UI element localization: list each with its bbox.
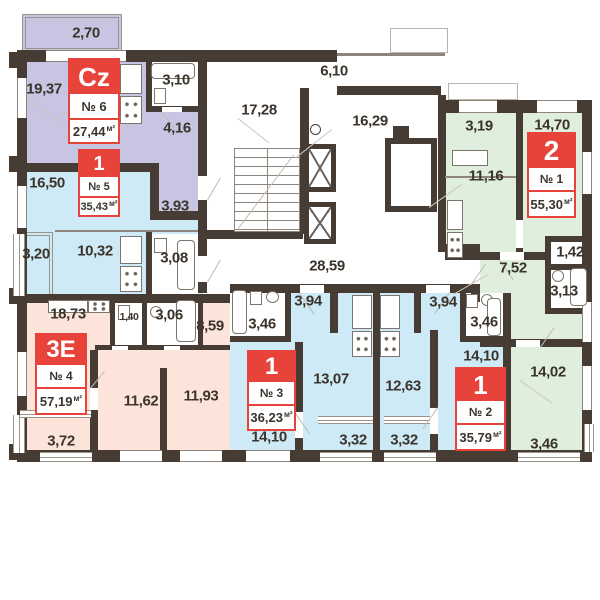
room-area-label: 14,10 bbox=[463, 348, 499, 365]
wall-segment bbox=[337, 53, 445, 56]
room-area-label: 16,50 bbox=[29, 175, 65, 192]
room-area-label: 13,07 bbox=[313, 371, 349, 388]
room-area-label: 3,32 bbox=[390, 432, 418, 449]
common-area-label: 17,28 bbox=[241, 102, 277, 119]
stove-icon bbox=[120, 266, 142, 292]
utility-shaft bbox=[385, 138, 437, 212]
window bbox=[17, 186, 27, 228]
room-area-label: 4,16 bbox=[163, 120, 191, 137]
area-unit: м² bbox=[493, 430, 502, 439]
room-area-label: 3,06 bbox=[155, 307, 183, 324]
door-opening bbox=[426, 285, 450, 293]
room-area-label: 11,93 bbox=[184, 388, 219, 405]
balcony-rail bbox=[518, 452, 580, 462]
area-unit: м² bbox=[73, 394, 82, 403]
window bbox=[537, 100, 577, 113]
balcony-rail bbox=[318, 416, 373, 424]
balcony-rail bbox=[320, 452, 372, 462]
apartment-area: 55,30м² bbox=[529, 192, 574, 216]
leader-line bbox=[237, 118, 269, 143]
apartment-area: 36,23м² bbox=[249, 406, 294, 429]
balcony-rail bbox=[384, 452, 436, 462]
window bbox=[582, 302, 592, 342]
wall-segment bbox=[393, 126, 409, 138]
room-area-label: 3,13 bbox=[550, 283, 578, 300]
kitchen-counter-icon bbox=[120, 64, 142, 94]
apartment-area: 35,43м² bbox=[80, 198, 118, 215]
wall-segment bbox=[545, 236, 592, 242]
apartment-type-label: 1 bbox=[457, 369, 504, 401]
toilet-icon bbox=[154, 88, 166, 104]
wall-segment bbox=[330, 287, 338, 333]
stove-icon bbox=[380, 331, 400, 357]
apartment-badge-2[interactable]: 1 № 2 35,79м² bbox=[455, 367, 506, 451]
wall-segment bbox=[146, 232, 152, 294]
room-area-label: 3,72 bbox=[47, 433, 75, 450]
elevator-icon bbox=[304, 144, 336, 192]
stove-icon bbox=[120, 96, 142, 124]
window bbox=[246, 450, 290, 462]
wall-segment bbox=[460, 336, 503, 342]
window bbox=[582, 152, 592, 194]
common-area-label: 28,59 bbox=[309, 258, 345, 275]
toilet-icon bbox=[466, 294, 478, 308]
common-area-label: 16,29 bbox=[352, 113, 388, 130]
room-area-label: 3,93 bbox=[161, 198, 189, 215]
balcony-rail bbox=[13, 234, 25, 296]
wall-segment bbox=[17, 450, 592, 462]
door-swing bbox=[207, 259, 221, 282]
door-opening bbox=[516, 340, 540, 347]
balcony-rail bbox=[13, 415, 25, 453]
room-area-label: 19,37 bbox=[26, 81, 62, 98]
apartment-type-label: 1 bbox=[249, 352, 294, 382]
wall-segment bbox=[414, 287, 421, 333]
door-opening bbox=[112, 346, 128, 350]
area-value: 55,30 bbox=[530, 197, 563, 212]
wall-segment bbox=[438, 95, 446, 244]
kitchen-counter-icon bbox=[352, 295, 372, 329]
window bbox=[180, 450, 222, 462]
apartment-number: № 2 bbox=[457, 401, 504, 425]
apartment-badge-4[interactable]: 3E № 4 57,19м² bbox=[35, 333, 87, 415]
door-opening bbox=[516, 220, 523, 248]
sink-icon bbox=[266, 291, 279, 303]
apartment-number: № 3 bbox=[249, 382, 294, 406]
room-area-label: 8,59 bbox=[196, 318, 224, 335]
window bbox=[459, 100, 497, 113]
area-value: 57,19 bbox=[40, 394, 73, 409]
window bbox=[17, 352, 27, 396]
area-unit: м² bbox=[564, 197, 573, 206]
wall-segment bbox=[9, 156, 17, 172]
apartment-badge-3[interactable]: 1 № 3 36,23м² bbox=[247, 350, 296, 431]
apartment-number: № 6 bbox=[70, 94, 118, 120]
wall-segment bbox=[160, 368, 167, 450]
room-area-label: 3,46 bbox=[248, 316, 276, 333]
room-area-label: 11,62 bbox=[124, 393, 159, 410]
window bbox=[582, 366, 592, 410]
room-area-label: 14,10 bbox=[251, 429, 287, 446]
door-opening bbox=[90, 388, 98, 410]
area-value: 27,44 bbox=[73, 124, 106, 139]
bathtub-icon bbox=[232, 290, 247, 334]
room-area-label: 7,52 bbox=[499, 260, 527, 277]
stove-icon bbox=[352, 331, 372, 357]
room-area-label: 3,46 bbox=[530, 436, 558, 453]
exterior-outline bbox=[448, 83, 518, 100]
elevator-icon bbox=[304, 202, 336, 244]
apartment-badge-1[interactable]: 2 № 1 55,30м² bbox=[527, 132, 576, 218]
room-area-label: 3,94 bbox=[294, 293, 322, 310]
wall-segment bbox=[9, 52, 17, 68]
apartment-badge-5[interactable]: 1 № 5 35,43м² bbox=[78, 149, 120, 217]
room-area-label: 1,40 bbox=[120, 311, 139, 323]
apartment-area: 27,44м² bbox=[70, 120, 118, 142]
room-area-label: 14,02 bbox=[530, 364, 566, 381]
apartment-type-label: 2 bbox=[529, 134, 574, 168]
wardrobe-icon bbox=[452, 150, 488, 166]
wall-segment bbox=[285, 287, 291, 336]
common-area-label: 6,10 bbox=[320, 63, 348, 80]
apartment-badge-6[interactable]: Cz № 6 27,44м² bbox=[68, 58, 120, 144]
sink-icon bbox=[552, 270, 564, 282]
room-area-label: 18,73 bbox=[50, 306, 86, 323]
wall-segment bbox=[373, 293, 380, 450]
room-area-label: 3,10 bbox=[162, 72, 190, 89]
wall-segment bbox=[230, 336, 291, 342]
area-unit: м² bbox=[109, 199, 118, 208]
wall-segment bbox=[110, 303, 115, 347]
area-value: 36,23 bbox=[250, 410, 283, 425]
door-opening bbox=[198, 256, 207, 282]
room-area-label: 3,19 bbox=[465, 118, 493, 135]
door-opening bbox=[198, 176, 207, 200]
apartment-type-label: Cz bbox=[70, 60, 118, 94]
kitchen-counter-icon bbox=[447, 200, 463, 230]
room-area-label: 14,70 bbox=[534, 117, 570, 134]
wall-segment bbox=[55, 230, 198, 232]
wall-segment bbox=[337, 86, 441, 95]
balcony-rail bbox=[584, 424, 594, 452]
stove-icon bbox=[447, 232, 463, 258]
room-area-label: 12,63 bbox=[385, 378, 421, 395]
room-area-label: 3,46 bbox=[470, 314, 498, 331]
area-value: 35,43 bbox=[80, 201, 108, 213]
window bbox=[120, 450, 162, 462]
door-opening bbox=[164, 346, 180, 350]
apartment-type-label: 1 bbox=[80, 151, 118, 177]
exterior-outline bbox=[390, 28, 448, 53]
apartment-number: № 5 bbox=[80, 177, 118, 198]
room-area-label: 3,20 bbox=[22, 246, 50, 263]
room-area-label: 3,94 bbox=[429, 294, 457, 311]
room-area-label: 2,70 bbox=[72, 25, 100, 42]
apartment-type-label: 3E bbox=[37, 335, 85, 365]
apartment-number: № 1 bbox=[529, 168, 574, 192]
apartment-number: № 4 bbox=[37, 365, 85, 389]
room-area-label: 1,42 bbox=[556, 244, 584, 261]
wall-segment bbox=[142, 303, 147, 347]
room-area-label: 3,08 bbox=[160, 250, 188, 267]
area-unit: м² bbox=[284, 410, 293, 419]
vent-icon bbox=[310, 124, 321, 135]
floor-plan: 2,70 19,37 3,10 4,16 16,50 3,93 3,20 10,… bbox=[0, 0, 600, 600]
kitchen-counter-icon bbox=[120, 236, 142, 264]
area-value: 35,79 bbox=[459, 430, 492, 445]
apartment-area: 57,19м² bbox=[37, 389, 85, 413]
balcony-rail bbox=[40, 452, 92, 462]
room-area-label: 3,32 bbox=[339, 432, 367, 449]
room-area-label: 10,32 bbox=[77, 243, 113, 260]
kitchen-counter-icon bbox=[380, 295, 400, 329]
door-swing bbox=[207, 177, 221, 200]
apartment-area: 35,79м² bbox=[457, 425, 504, 449]
area-unit: м² bbox=[106, 124, 115, 133]
room-area-label: 11,16 bbox=[469, 168, 504, 185]
wall-segment bbox=[545, 236, 551, 314]
stove-icon bbox=[88, 300, 110, 313]
door-opening bbox=[162, 107, 182, 112]
toilet-icon bbox=[250, 291, 262, 305]
